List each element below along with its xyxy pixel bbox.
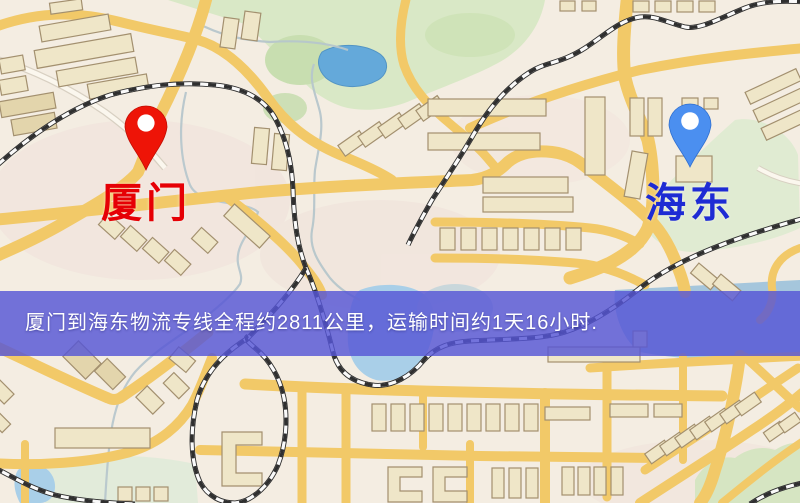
route-info-text: 厦门到海东物流专线全程约2811公里，运输时间约1天16小时. — [25, 312, 598, 334]
map-canvas — [0, 0, 800, 503]
origin-label: 厦门 — [66, 183, 226, 224]
destination-label: 海东 — [610, 183, 770, 224]
route-info-banner: 厦门到海东物流专线全程约2811公里，运输时间约1天16小时. — [0, 291, 800, 356]
logistics-route-map: 厦门 海东 厦门到海东物流专线全程约2811公里，运输时间约1天16小时. — [0, 0, 800, 503]
pond-north — [319, 45, 387, 86]
